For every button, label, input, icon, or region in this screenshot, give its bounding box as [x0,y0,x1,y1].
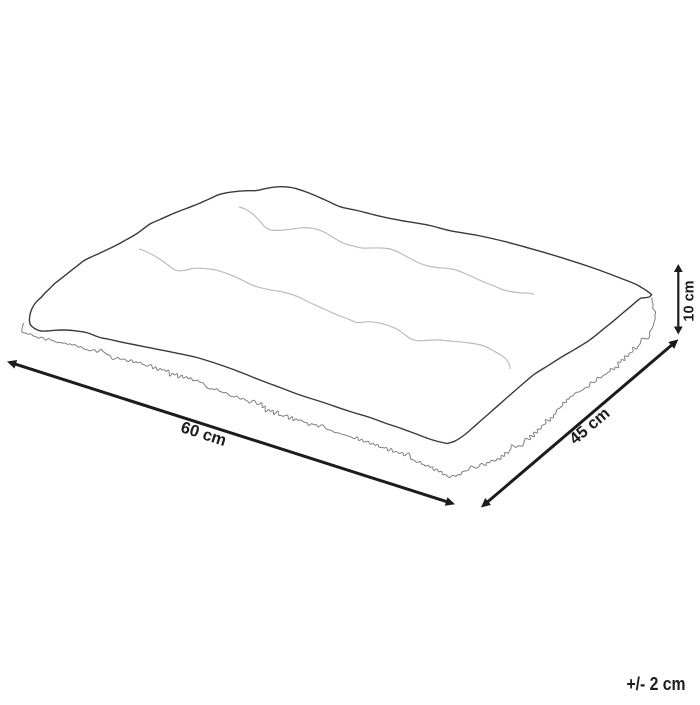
svg-text:+/- 2 cm: +/- 2 cm [627,673,686,694]
svg-text:10 cm: 10 cm [682,280,698,321]
